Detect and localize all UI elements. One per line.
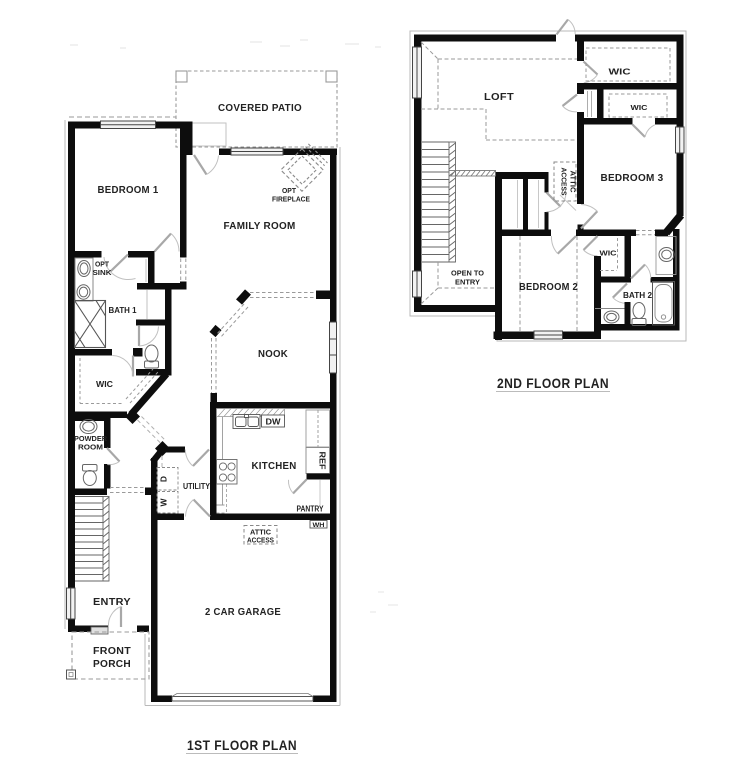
svg-text:BEDROOM 3: BEDROOM 3 <box>601 172 664 184</box>
svg-text:REF: REF <box>318 452 327 470</box>
svg-text:KITCHEN: KITCHEN <box>252 460 297 472</box>
svg-text:WH: WH <box>313 522 325 529</box>
svg-text:OPEN TO: OPEN TO <box>451 269 484 278</box>
svg-text:BEDROOM 1: BEDROOM 1 <box>98 184 159 196</box>
svg-text:FAMILY ROOM: FAMILY ROOM <box>224 220 296 232</box>
svg-text:WIC: WIC <box>631 105 648 112</box>
svg-text:BATH 2: BATH 2 <box>623 291 653 300</box>
svg-text:ACCESS: ACCESS <box>560 168 567 196</box>
svg-text:BATH 1: BATH 1 <box>109 306 138 315</box>
svg-text:SINK: SINK <box>93 270 112 277</box>
svg-text:DW: DW <box>266 418 282 427</box>
svg-text:1ST FLOOR PLAN: 1ST FLOOR PLAN <box>187 737 297 753</box>
svg-text:PORCH: PORCH <box>93 658 131 670</box>
svg-text:2 CAR GARAGE: 2 CAR GARAGE <box>205 606 281 618</box>
svg-text:PANTRY: PANTRY <box>297 505 325 514</box>
svg-text:ENTRY: ENTRY <box>455 278 480 287</box>
svg-text:ATTIC: ATTIC <box>569 171 576 193</box>
svg-text:W: W <box>159 498 169 507</box>
svg-text:WIC: WIC <box>96 380 113 389</box>
svg-text:WIC: WIC <box>609 67 631 77</box>
svg-text:ROOM: ROOM <box>78 443 103 452</box>
svg-text:FIREPLACE: FIREPLACE <box>272 195 310 204</box>
svg-text:UTILITY: UTILITY <box>183 482 211 491</box>
svg-text:COVERED PATIO: COVERED PATIO <box>218 103 302 114</box>
svg-text:NOOK: NOOK <box>258 348 288 360</box>
svg-text:2ND FLOOR PLAN: 2ND FLOOR PLAN <box>497 375 609 391</box>
svg-text:BEDROOM 2: BEDROOM 2 <box>519 281 578 293</box>
svg-text:ACCESS: ACCESS <box>247 538 274 545</box>
svg-text:OPT: OPT <box>95 262 110 269</box>
svg-text:ATTIC: ATTIC <box>250 530 271 537</box>
svg-text:LOFT: LOFT <box>484 91 514 103</box>
svg-text:WIC: WIC <box>600 251 617 258</box>
svg-text:D: D <box>159 476 169 482</box>
svg-text:ENTRY: ENTRY <box>93 596 131 608</box>
svg-text:FRONT: FRONT <box>93 645 131 657</box>
